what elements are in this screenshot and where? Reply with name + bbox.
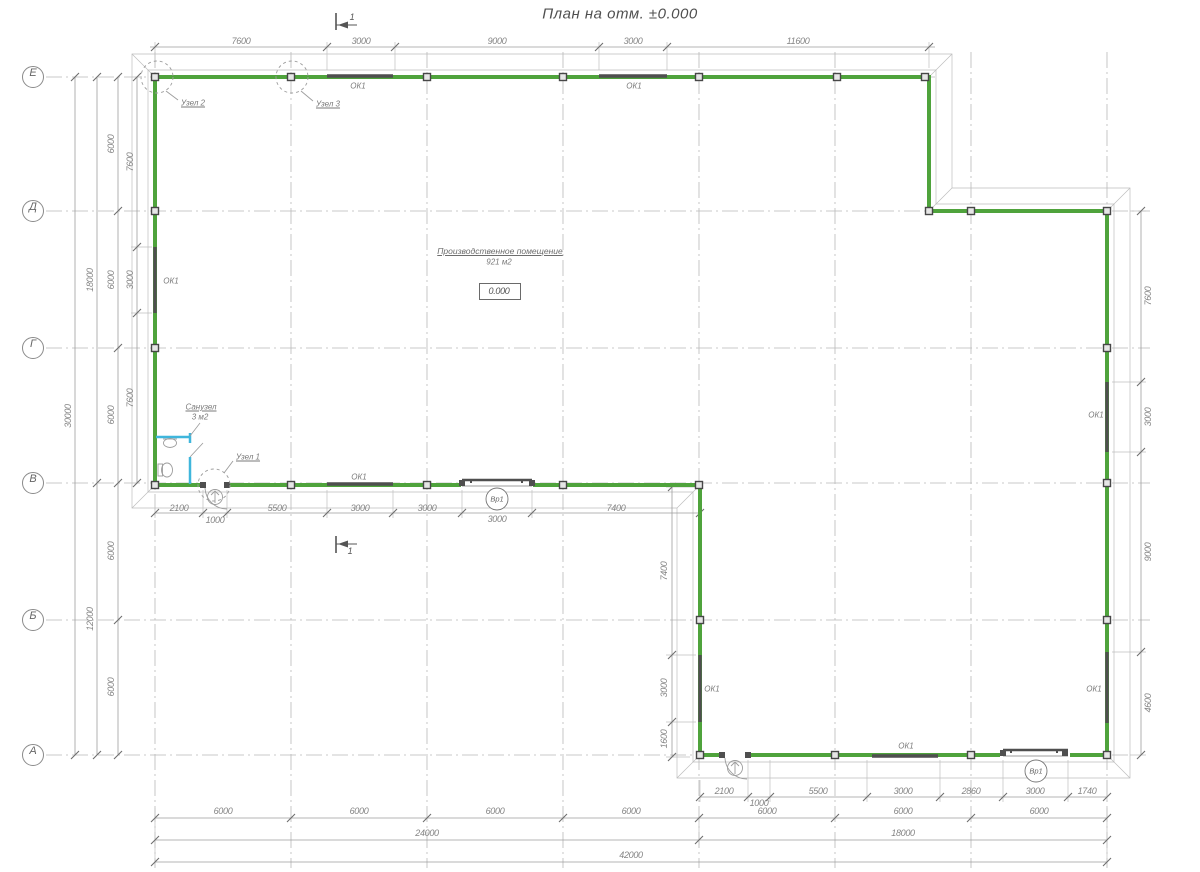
axis-bubble-v: В: [22, 472, 44, 494]
window-label: ОК1: [351, 473, 366, 482]
level-mark: 0.000: [488, 286, 509, 296]
dim-label: 9000: [488, 36, 507, 46]
dim-label: 7600: [125, 153, 135, 172]
node-label-3: Узел 3: [316, 100, 340, 109]
exterior-walls: [155, 77, 1107, 755]
dim-label: 9000: [1143, 543, 1153, 562]
dim-label: 6000: [106, 271, 116, 290]
section-number: 1: [348, 546, 353, 556]
plan-linework: [0, 0, 1200, 872]
section-number: 1: [350, 12, 355, 22]
dim-label: 6000: [622, 806, 641, 816]
dim-label: 6000: [1030, 806, 1049, 816]
gate-label-circles: [486, 488, 1047, 782]
dim-label: 18000: [85, 268, 95, 292]
window-label: ОК1: [626, 82, 641, 91]
dim-label: 6000: [106, 406, 116, 425]
columns: [152, 74, 1111, 759]
node-label-2: Узел 2: [181, 99, 205, 108]
room-name: Производственное помещение: [437, 246, 563, 256]
window-label: ОК1: [350, 82, 365, 91]
dim-label: 2100: [170, 503, 189, 513]
grid-lines: [46, 52, 1150, 868]
dim-label: 5500: [809, 786, 828, 796]
dim-label: 6000: [350, 806, 369, 816]
dimension-ticks: [71, 43, 1145, 866]
gate-label: Вр1: [1029, 767, 1042, 776]
dim-label: 6000: [758, 806, 777, 816]
dim-label: 12000: [85, 607, 95, 631]
window-label: ОК1: [1086, 685, 1101, 694]
dim-label: 2100: [715, 786, 734, 796]
room-area: 921 м2: [486, 258, 512, 267]
dim-label: 7400: [607, 503, 626, 513]
dim-label: 5500: [268, 503, 287, 513]
window-label: ОК1: [1088, 411, 1103, 420]
dim-label: 6000: [106, 678, 116, 697]
dim-label: 18000: [891, 828, 915, 838]
dim-label: 3000: [125, 271, 135, 290]
bathroom-fixtures: [158, 439, 177, 478]
dim-label: 1740: [1078, 786, 1097, 796]
dim-label: 42000: [619, 850, 643, 860]
dim-label: 3000: [1026, 786, 1045, 796]
axis-bubble-a: А: [22, 744, 44, 766]
dim-label: 3000: [894, 786, 913, 796]
dim-label: 6000: [106, 542, 116, 561]
dim-label: 7400: [659, 562, 669, 581]
axis-bubble-b: Б: [22, 609, 44, 631]
bathroom-name: Санузел: [185, 403, 216, 412]
door-a-wall: [719, 751, 751, 779]
bathroom-area: 3 м2: [192, 413, 209, 422]
dim-label: 30000: [63, 404, 73, 428]
dim-label: 6000: [106, 135, 116, 154]
dim-label: 11600: [787, 36, 810, 46]
window-label: ОК1: [898, 742, 913, 751]
axis-bubble-e: Е: [22, 66, 44, 88]
dim-label: 1600: [659, 730, 669, 749]
dim-label: 3000: [351, 503, 370, 513]
dim-label: 3000: [488, 514, 507, 524]
axis-bubble-g: Г: [22, 337, 44, 359]
door-v-wall: [200, 481, 230, 509]
window-label: ОК1: [704, 685, 719, 694]
dim-label: 4600: [1143, 694, 1153, 713]
dim-label: 1000: [206, 515, 225, 525]
dimension-lines: [75, 47, 1141, 862]
dim-label: 7600: [232, 36, 251, 46]
extension-lines: [131, 42, 1146, 867]
dim-label: 3000: [352, 36, 371, 46]
dim-label: 3000: [418, 503, 437, 513]
gate-a-wall: [1000, 750, 1070, 759]
dim-label: 3000: [659, 679, 669, 698]
drawing-title: План на отм. ±0.000: [542, 6, 697, 23]
windows: [155, 76, 1107, 756]
axis-bubble-d: Д: [22, 200, 44, 222]
gate-label: Вр1: [490, 495, 503, 504]
node-label-1: Узел 1: [236, 453, 260, 462]
dim-label: 6000: [894, 806, 913, 816]
dim-label: 3000: [624, 36, 643, 46]
dim-label: 7600: [1143, 287, 1153, 306]
dim-label: 3000: [1143, 408, 1153, 427]
window-label: ОК1: [163, 277, 178, 286]
dim-label: 6000: [214, 806, 233, 816]
dim-label: 6000: [486, 806, 505, 816]
dim-label: 2860: [962, 786, 981, 796]
outer-contour: [132, 54, 1130, 778]
floor-plan-canvas: План на отм. ±0.000 Е Д Г В Б А 7600 300…: [0, 0, 1200, 872]
dim-label: 24000: [415, 828, 439, 838]
dim-label: 7600: [125, 389, 135, 408]
